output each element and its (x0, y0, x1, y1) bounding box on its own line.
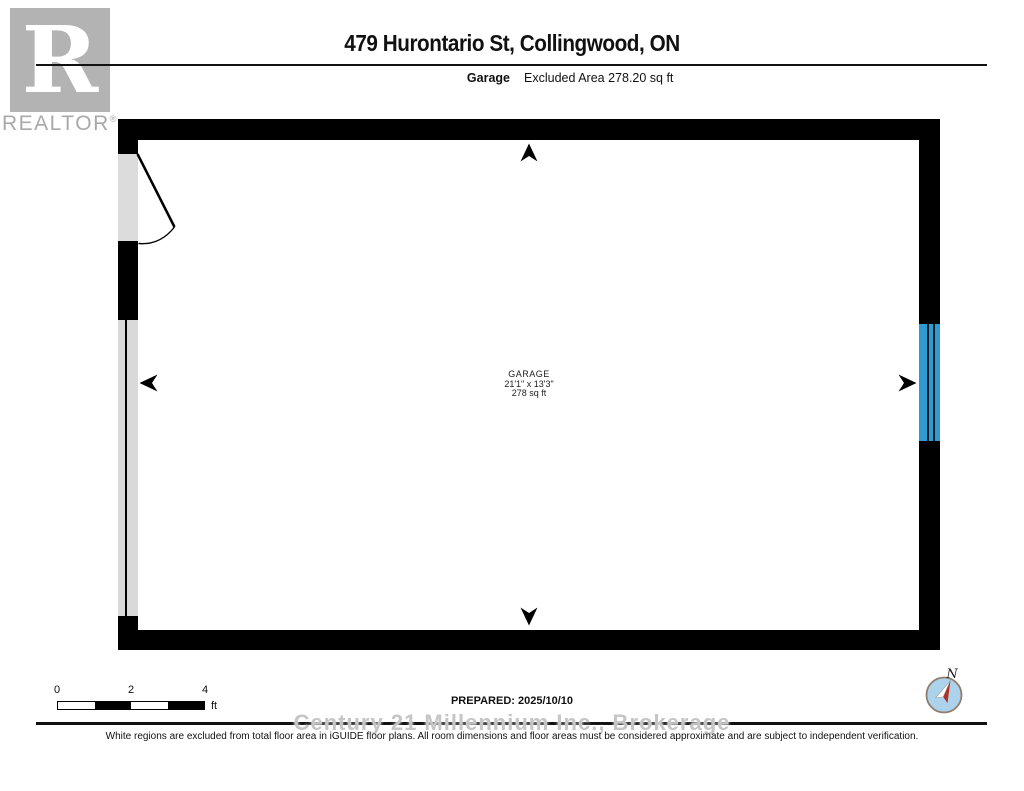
arrow-left-icon (140, 375, 158, 392)
realtor-logo: R (10, 8, 110, 112)
arrow-up-icon (521, 144, 538, 162)
room-area: 278 sq ft (429, 389, 629, 399)
realtor-logo-letter: R (22, 14, 98, 106)
wall-top (118, 119, 940, 140)
window-pane-line (927, 324, 929, 441)
floorplan-page: R REALTOR® 479 Hurontario St, Collingwoo… (0, 0, 1024, 791)
arrow-down-icon (521, 608, 538, 626)
room-label: GARAGE 21'1" x 13'3" 278 sq ft (429, 370, 629, 399)
wall-left-lower (118, 618, 138, 630)
disclaimer-text: White regions are excluded from total fl… (0, 731, 1024, 742)
registered-trademark-symbol: ® (110, 114, 117, 124)
realtor-wordmark-text: REALTOR (2, 112, 110, 135)
wall-right-upper (919, 140, 940, 322)
entry-door-opening (118, 152, 138, 243)
page-title: 479 Hurontario St, Collingwood, ON (51, 30, 973, 57)
door-swing-arc (139, 227, 175, 244)
floor-label: Garage (467, 71, 510, 85)
compass-north-label: N (945, 667, 958, 682)
title-divider (36, 64, 987, 66)
overhead-garage-door (118, 318, 138, 618)
wall-left-middle (118, 243, 138, 318)
compass-icon: N (918, 658, 972, 716)
window-pane-line (933, 324, 935, 441)
garage-door-line (125, 320, 127, 616)
prepared-date: PREPARED: 2025/10/10 (0, 695, 1024, 707)
excluded-area-note: Excluded Area 278.20 sq ft (524, 71, 673, 85)
wall-right-lower (919, 443, 940, 630)
wall-bottom (118, 630, 940, 650)
arrow-right-icon (899, 375, 917, 392)
floor-subtitle: Garage Excluded Area 278.20 sq ft (0, 71, 1024, 87)
door-leaf (138, 154, 175, 227)
window (919, 322, 940, 443)
